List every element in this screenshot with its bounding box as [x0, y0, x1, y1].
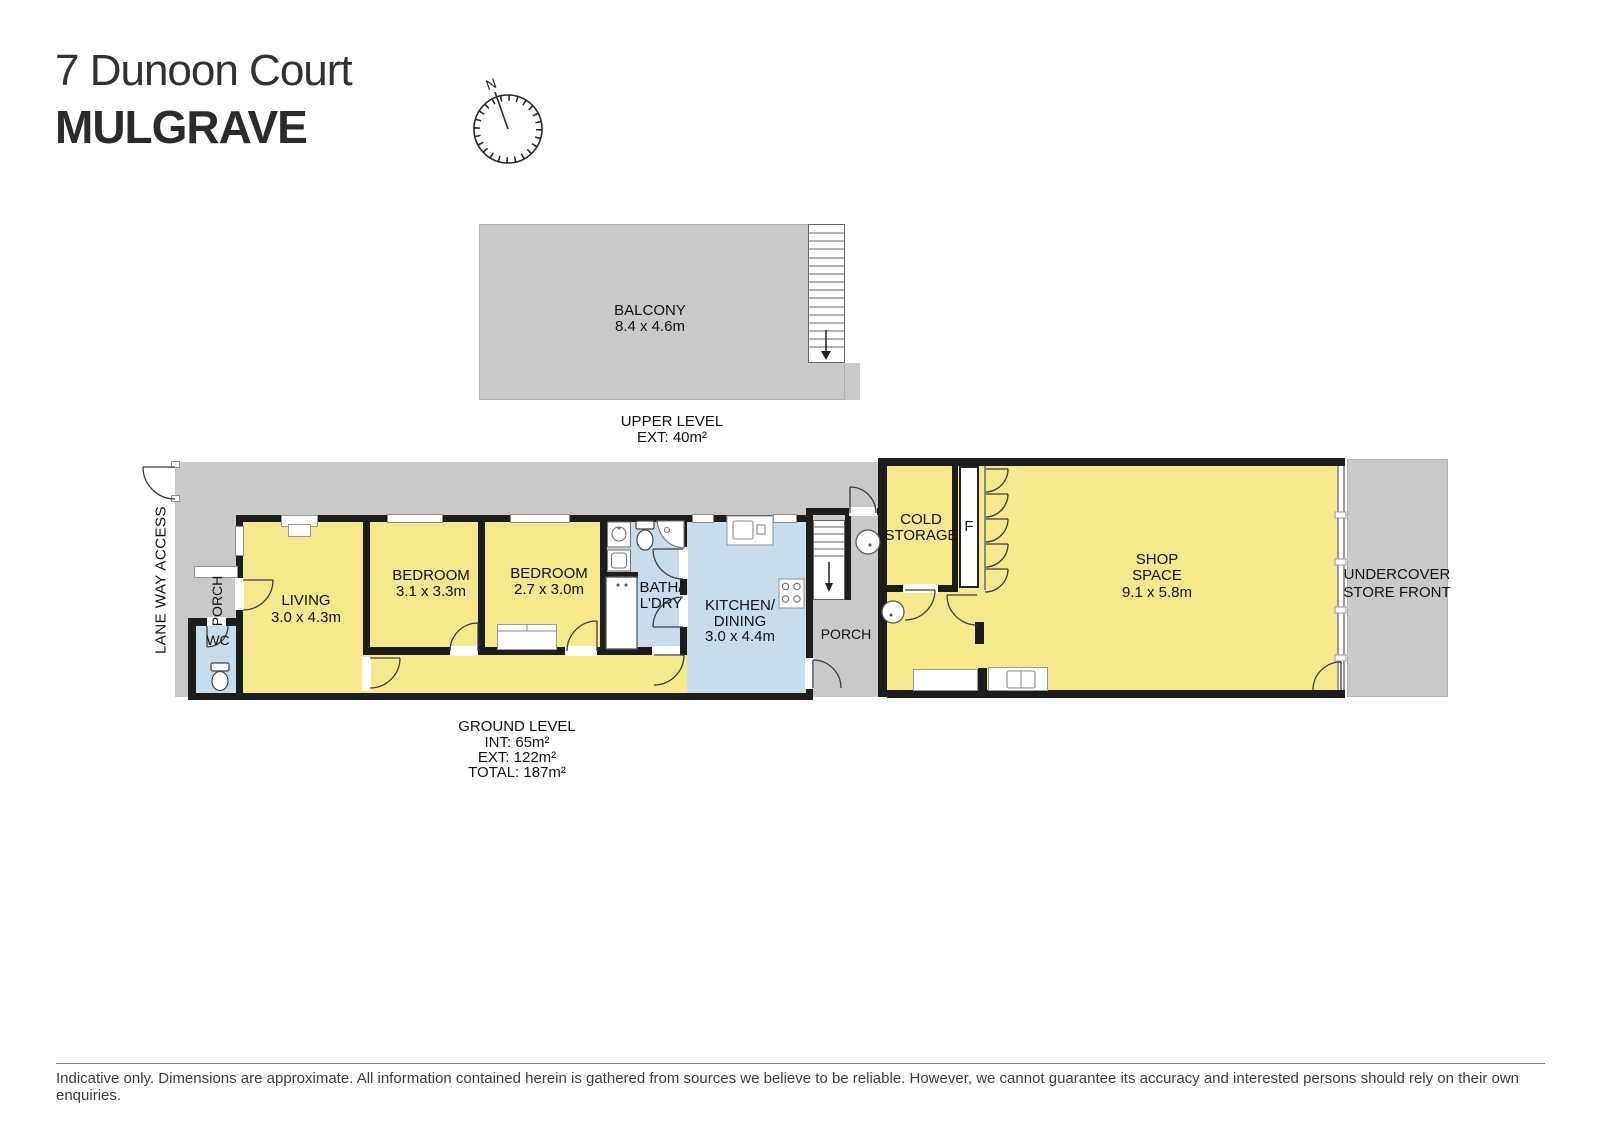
- bedroom2-dims: 2.7 x 3.0m: [514, 582, 584, 598]
- bedroom1-name: BEDROOM: [392, 568, 470, 584]
- dwelling-wall-bottom: [188, 693, 813, 700]
- shop-label-1: SHOP: [1136, 552, 1179, 568]
- counter-divider-wall: [978, 668, 987, 690]
- kitchen-porch-door-gap: [805, 658, 814, 689]
- compass-north-label: N: [484, 75, 499, 93]
- disclaimer-text: Indicative only. Dimensions are approxim…: [56, 1070, 1545, 1104]
- living-dims: 3.0 x 4.3m: [271, 610, 341, 626]
- hall-wall-c: [597, 647, 652, 655]
- balcony-landing: [845, 363, 860, 400]
- undercover-label-1: UNDERCOVER: [1344, 567, 1451, 583]
- ground-caption-4: TOTAL: 187m²: [468, 765, 566, 781]
- bath-label-1: BATH/: [639, 580, 682, 596]
- bath-hall-door-gap: [652, 646, 680, 656]
- living-door-gap: [235, 578, 244, 610]
- vestibule-wall-stub: [975, 622, 984, 644]
- shop-label-2: SPACE: [1132, 568, 1182, 584]
- bath-label-2: L'DRY: [640, 596, 683, 612]
- balcony-name: BALCONY: [614, 303, 686, 319]
- shop-dims: 9.1 x 5.8m: [1122, 585, 1192, 601]
- ground-staircase: [813, 520, 845, 600]
- bath-internal-wall: [604, 572, 638, 578]
- compass-icon: [474, 92, 542, 163]
- page-title-address: 7 Dunoon Court: [55, 46, 352, 96]
- bed2-wardrobe: [497, 624, 557, 650]
- living-window-left: [235, 526, 244, 556]
- kitchen-label-1: KITCHEN/: [705, 598, 775, 614]
- bed1-door-gap: [450, 646, 478, 656]
- wall-bed1-bed2: [478, 515, 485, 655]
- coldstorage-wall-bottom-a: [887, 585, 903, 592]
- kitchen-dims: 3.0 x 4.4m: [705, 629, 775, 645]
- porch-left-label: PORCH: [209, 576, 225, 627]
- coldstorage-wall-bottom-b: [938, 585, 958, 592]
- balcony-dims: 8.4 x 4.6m: [615, 319, 685, 335]
- bed1-window: [387, 514, 443, 523]
- footer-divider: [56, 1063, 1545, 1064]
- page-title-suburb: MULGRAVE: [55, 100, 307, 154]
- wc-label: WC: [206, 632, 229, 648]
- hall-living-door-gap: [362, 657, 371, 691]
- wc-wall-top-a: [188, 618, 207, 626]
- gate-jamb-bottom: [171, 495, 180, 502]
- shop-wall-top: [878, 458, 1345, 466]
- undercover-label-2: STORE FRONT: [1343, 585, 1450, 601]
- kitchen-window-b: [773, 514, 797, 523]
- shop-counter-a: [913, 669, 978, 691]
- coldstorage-label-2: STORAGE: [884, 528, 957, 544]
- porch-wall-top-a: [806, 508, 850, 515]
- coldstorage-label-1: COLD: [900, 512, 942, 528]
- wc-wall-left: [188, 618, 196, 700]
- freezer-label: F: [964, 519, 973, 535]
- upper-caption-1: UPPER LEVEL: [621, 414, 724, 430]
- bed2-window: [510, 514, 570, 523]
- bath-door-gap-a: [679, 547, 688, 579]
- upper-staircase: [808, 224, 845, 363]
- bed2-door-gap: [565, 646, 597, 656]
- upper-caption-2: EXT: 40m²: [637, 430, 707, 446]
- kitchen-window-a: [692, 514, 714, 523]
- floorplan-page: 7 Dunoon Court MULGRAVE N: [0, 0, 1600, 1131]
- hall-wall-d: [680, 647, 687, 655]
- ground-caption-1: GROUND LEVEL: [458, 719, 576, 735]
- wall-bed2-bath: [600, 515, 607, 655]
- bedroom2-name: BEDROOM: [510, 566, 588, 582]
- laneway-label: LANE WAY ACCESS: [153, 506, 170, 654]
- wc-wall-top-b: [226, 618, 240, 626]
- shop-wall-left: [878, 458, 887, 697]
- hall-wall-a: [363, 647, 450, 655]
- gate-jamb-top: [171, 461, 180, 468]
- shop-counter-b: [988, 667, 1048, 691]
- wall-living-bed1: [363, 515, 370, 655]
- living-name: LIVING: [281, 593, 330, 609]
- porch-mid-label: PORCH: [821, 626, 872, 642]
- shop-wall-bottom: [887, 690, 1345, 698]
- coldstorage-door-gap: [903, 584, 938, 593]
- stairs-wall-right: [845, 515, 851, 600]
- porch-top-door-gap: [849, 507, 877, 516]
- bedroom1-dims: 3.1 x 3.3m: [396, 584, 466, 600]
- living-fireplace-hearth: [288, 524, 311, 537]
